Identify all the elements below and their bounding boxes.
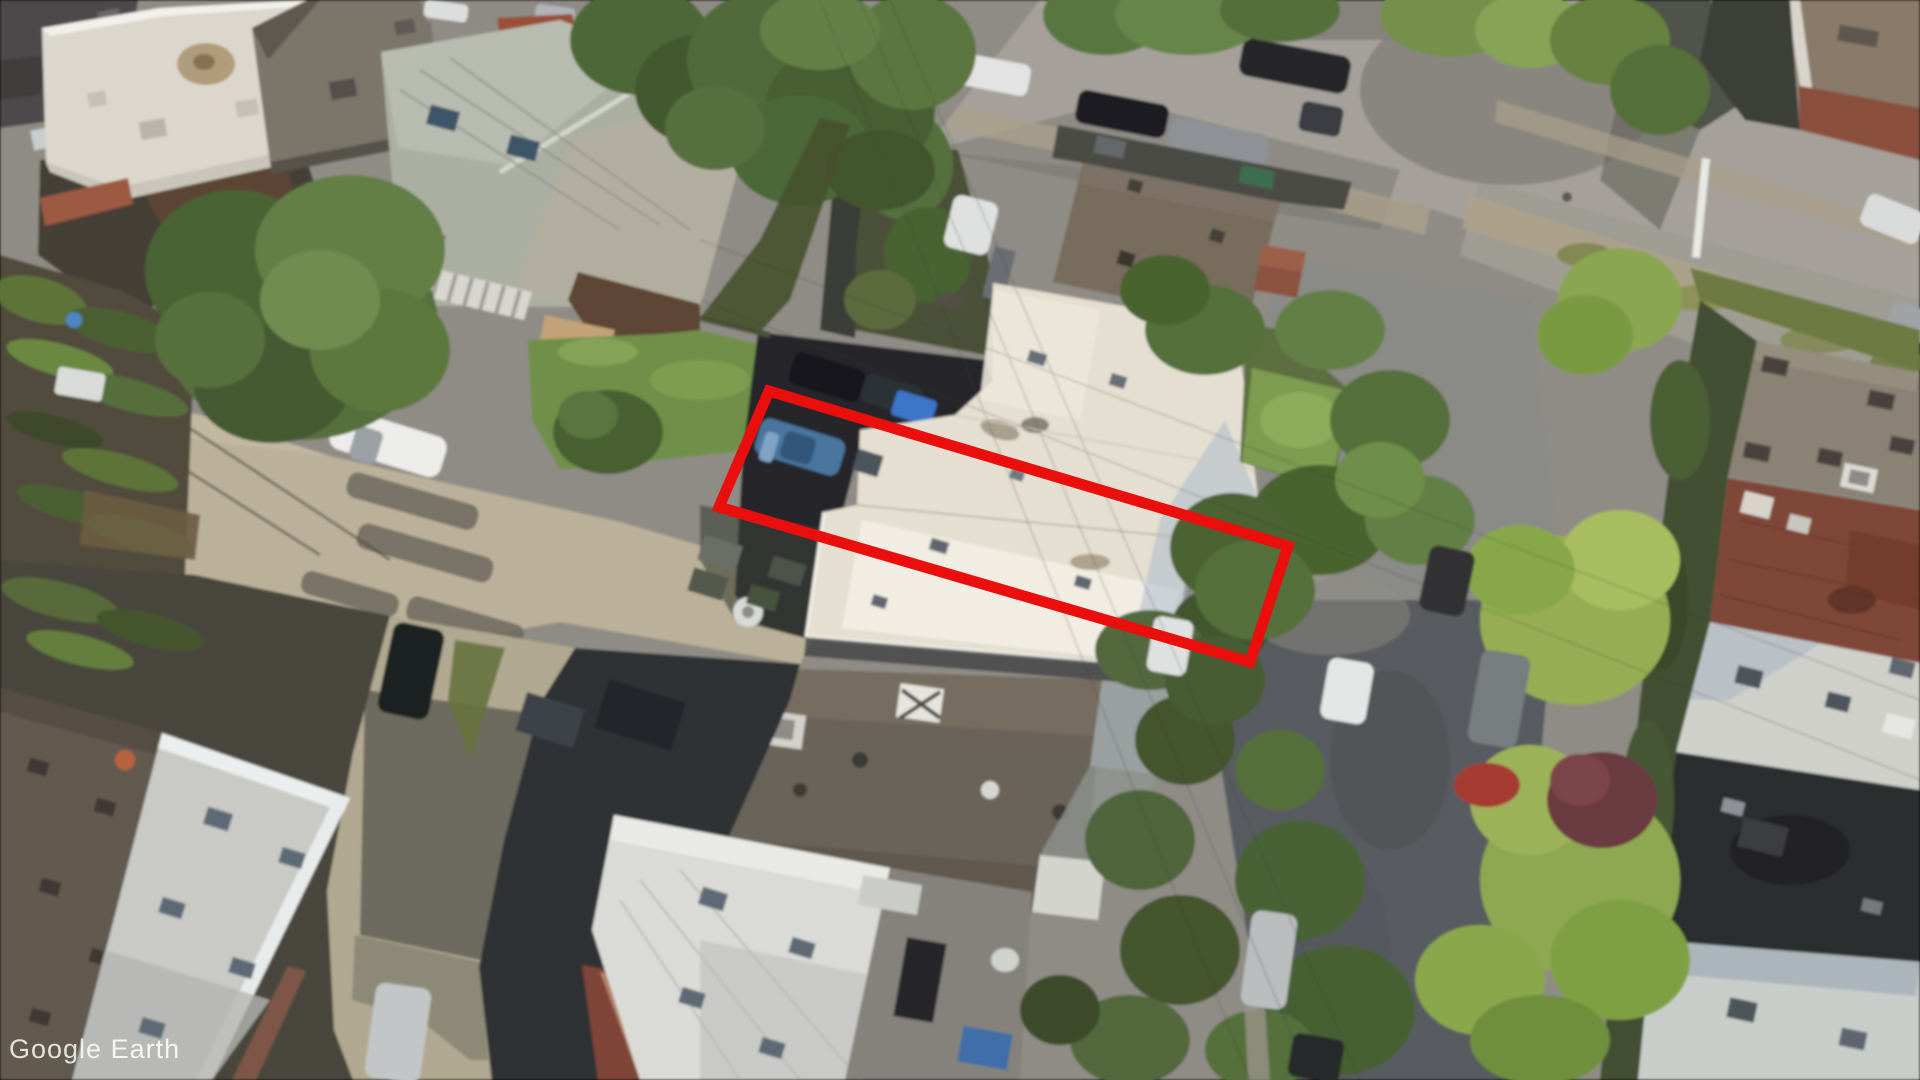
svg-text:Google Earth: Google Earth <box>9 1034 180 1064</box>
